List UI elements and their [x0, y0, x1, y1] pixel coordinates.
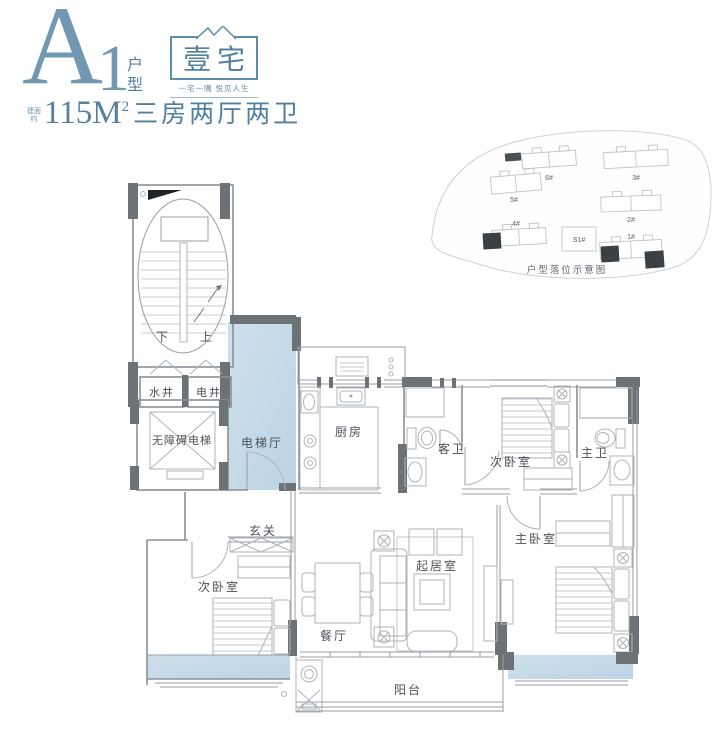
area-prefix-1: 建面 [27, 108, 41, 116]
master-toilet [595, 429, 615, 447]
shoe-cabinet [230, 538, 293, 552]
balcony-slider [300, 652, 494, 657]
master-bathroom: 主卫 [580, 388, 634, 491]
site-map-caption: 户型落位示意图 [527, 264, 608, 276]
site-label-2: 2# [627, 217, 635, 224]
bedroom-top-wardrobe [524, 468, 572, 490]
room-label-electric-shaft: 电井 [196, 385, 222, 399]
area-superscript: 2 [122, 99, 130, 116]
master-bay-sill [515, 681, 628, 685]
brand-char-1: 壹 [183, 38, 211, 78]
room-label-bedroom-left: 次卧室 [198, 579, 240, 594]
living-lamp [374, 531, 394, 551]
room-label-stairs-up: 上 [200, 330, 214, 344]
room-label-elevator: 无障碍电梯 [152, 433, 212, 447]
elevator-hall-area [228, 322, 296, 490]
room-label-living: 起居室 [416, 558, 458, 573]
bedroom-top-lamp [554, 386, 570, 402]
highlighted-unit-marker [483, 233, 502, 250]
room-label-foyer: 玄关 [249, 523, 277, 538]
header: A 1 户型 壹 宅 一宅一隅 悦见人生 建面 约 115M 2 三房两厅两卫 [0, 0, 724, 150]
coffee-table [414, 574, 450, 610]
bedroom-top-bed [502, 398, 569, 458]
site-label-3: 3# [632, 175, 640, 182]
highlighted-unit-marker [644, 250, 664, 268]
highlighted-unit-marker [601, 246, 620, 263]
bedroom-left-baywindow [147, 655, 290, 679]
master-bath-door-arc [580, 461, 609, 491]
site-label-s1: S1# [573, 237, 586, 244]
guest-shower [406, 388, 444, 417]
area-value: 115M [44, 98, 122, 128]
tv-console-master [501, 580, 513, 624]
master-shower [580, 388, 632, 418]
area-prefix: 建面 约 [27, 108, 41, 124]
unit-type-text: 户型 [127, 57, 143, 94]
balcony: 阳台 [296, 652, 503, 712]
room-label-water-shaft: 水井 [149, 385, 175, 399]
master-bed [556, 567, 629, 633]
balcony-railing [296, 702, 503, 711]
site-label-4: 4# [512, 221, 520, 228]
bedroom-top-window [490, 380, 547, 386]
dining-chair [302, 597, 315, 616]
entry-flag-icon [148, 190, 182, 200]
stair-direction-arrow [194, 288, 218, 322]
room-label-master-bedroom: 主卧室 [515, 531, 557, 546]
bedroom-left-wardrobe [238, 556, 290, 578]
service-shafts: 水井 电井 [140, 375, 231, 407]
dining-chair [302, 573, 315, 592]
ottoman [407, 631, 457, 652]
unit-code-letter: A [22, 0, 103, 102]
brand-tagline: 一宅一隅 悦见人生 [170, 83, 258, 98]
room-label-bedroom-top: 次卧室 [490, 454, 532, 469]
room-label-master-bathroom: 主卫 [581, 446, 609, 460]
dining-room: 餐厅 [302, 563, 373, 643]
room-label-stairs-down: 下 [156, 330, 170, 344]
master-lamp [614, 549, 632, 567]
floorplan-page: A 1 户型 壹 宅 一宅一隅 悦见人生 建面 约 115M 2 三房两厅两卫 [0, 0, 724, 734]
living-lamp [374, 627, 394, 647]
unit-type-label: 户型 [126, 56, 144, 96]
room-label-elevator-hall: 电梯厅 [241, 436, 283, 450]
hallway-walls [462, 489, 577, 529]
master-bedroom-door-arc [507, 496, 540, 529]
area-line: 建面 约 115M 2 三房两厅两卫 [27, 98, 301, 128]
bedroom-left-bay-sill [155, 683, 283, 687]
site-annex-block [505, 152, 522, 161]
kitchen-island [320, 407, 378, 490]
site-label-1: 1# [627, 234, 635, 241]
site-map: 6# 3# 5# 2# 4# S1# 1# 户型落位示意图 [432, 131, 711, 279]
kitchen: 厨房 [298, 347, 407, 493]
washing-machine [296, 660, 322, 712]
site-label-6: 6# [545, 175, 553, 182]
layout-description: 三房两厅两卫 [133, 100, 301, 128]
room-label-balcony: 阳台 [394, 682, 422, 697]
room-label-kitchen: 厨房 [335, 424, 363, 439]
bedroom-top: 次卧室 [465, 385, 577, 490]
guest-bathroom: 客卫 [405, 385, 466, 486]
brand-logo: 壹 宅 一宅一隅 悦见人生 [170, 36, 258, 98]
brand-char-2: 宅 [217, 38, 245, 78]
bedroom-top-lamp [554, 452, 570, 468]
master-baywindow [508, 655, 633, 679]
living-room: 起居室 [371, 529, 473, 652]
brand-logo-box: 壹 宅 [170, 36, 258, 80]
dining-table [315, 563, 360, 623]
area-prefix-2: 约 [27, 116, 41, 124]
site-label-5: 5# [510, 197, 518, 204]
stairwell: 下 上 [128, 183, 233, 407]
foyer: 玄关 [147, 492, 293, 552]
armchair [437, 529, 462, 555]
armchair [409, 529, 434, 555]
room-label-dining: 餐厅 [320, 628, 348, 643]
mountain-peaks-icon [196, 26, 236, 40]
guest-toilet-tank [407, 428, 416, 449]
elevator: 无障碍电梯 [130, 400, 228, 490]
master-wardrobe [556, 495, 634, 547]
stair-spine [180, 243, 187, 342]
bedroom-left-door-arc [192, 542, 228, 578]
bedroom-left-bed [213, 598, 290, 655]
room-label-guest-bathroom: 客卫 [438, 441, 466, 456]
